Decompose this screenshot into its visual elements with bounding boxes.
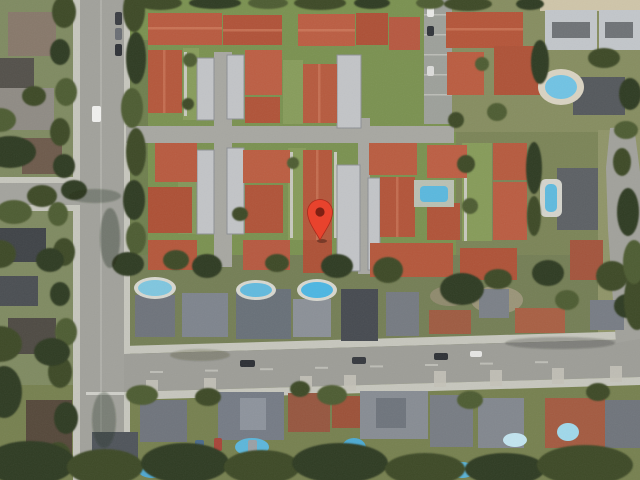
pin-center-dot [315, 207, 324, 216]
pin-shadow [317, 239, 327, 243]
satellite-map-canvas [0, 0, 640, 480]
map-viewport[interactable] [0, 0, 640, 480]
